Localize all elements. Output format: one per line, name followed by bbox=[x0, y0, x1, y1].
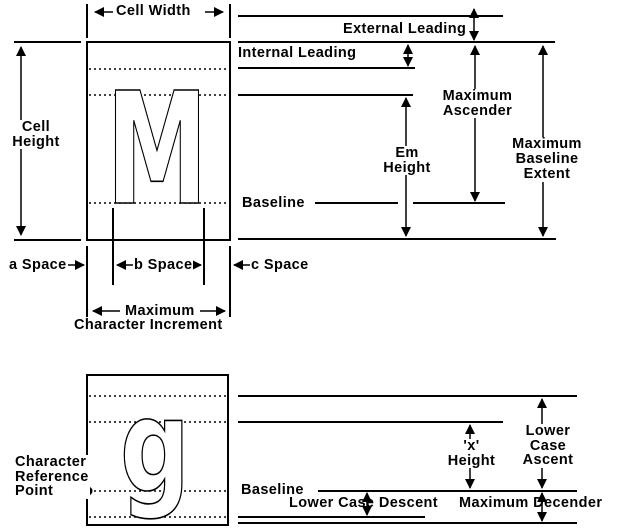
font-metrics-diagram: M bbox=[0, 0, 622, 528]
overlay-arrows bbox=[0, 0, 622, 528]
